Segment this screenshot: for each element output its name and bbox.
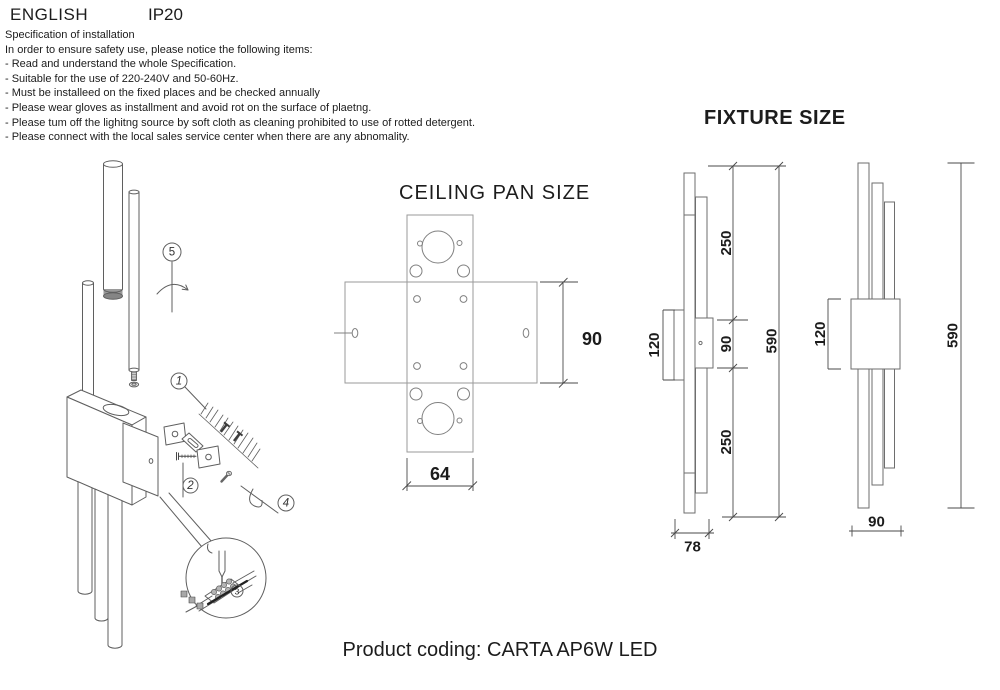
spec-intro: In order to ensure safety use, please no… bbox=[5, 43, 475, 58]
specification-text: Specification of installation In order t… bbox=[5, 28, 475, 145]
step-4-number: 4 bbox=[283, 498, 289, 510]
spec-item: - Must be installeed on the fixed places… bbox=[5, 86, 475, 101]
fixture-front-view bbox=[851, 163, 900, 508]
step-3-number: 3 bbox=[235, 587, 240, 597]
step-1-number: 1 bbox=[176, 376, 182, 388]
small-screw-icon bbox=[222, 471, 232, 481]
dim-side-body: 90 bbox=[718, 336, 735, 353]
spec-item: - Please wear gloves as installment and … bbox=[5, 101, 475, 116]
spec-item: - Please connect with the local sales se… bbox=[5, 130, 475, 145]
lamp-tube-left bbox=[83, 281, 94, 400]
dim-side-depth: 78 bbox=[684, 539, 701, 556]
pan-vertical-plate bbox=[407, 215, 473, 452]
fixture-size-title: FIXTURE SIZE bbox=[704, 107, 846, 130]
dim-front-body-height: 120 bbox=[812, 321, 829, 346]
pan-dimension-lines bbox=[403, 278, 579, 491]
pan-holes bbox=[334, 231, 529, 435]
step-2-number: 2 bbox=[186, 480, 194, 492]
spec-item: - Please tum off the lighitng source by … bbox=[5, 116, 475, 131]
lamp-tubes-bottom bbox=[78, 482, 122, 649]
spec-item: - Suitable for the use of 220-240V and 5… bbox=[5, 72, 475, 87]
dim-side-lower-tube: 250 bbox=[718, 429, 735, 454]
lamp-tube-large bbox=[104, 161, 123, 300]
wall-bracket bbox=[164, 423, 220, 468]
fixture-size-diagram: 120 250 90 250 590 78 120 590 90 bbox=[640, 135, 1000, 570]
dim-pan-height: 90 bbox=[582, 329, 602, 349]
fixture-side-view bbox=[674, 173, 713, 513]
wiring-detail-circle bbox=[160, 493, 266, 618]
language-label: ENGLISH bbox=[10, 5, 88, 25]
dim-side-upper-tube: 250 bbox=[718, 230, 735, 255]
dim-front-overall: 590 bbox=[945, 323, 962, 348]
dim-front-width: 90 bbox=[868, 514, 885, 531]
screw-icon bbox=[177, 453, 197, 461]
dim-side-body-height: 120 bbox=[646, 332, 663, 357]
dim-pan-width: 64 bbox=[430, 464, 450, 484]
pan-horizontal-plate bbox=[345, 282, 537, 383]
product-coding: Product coding: CARTA AP6W LED bbox=[0, 639, 1000, 662]
lamp-tube-thin bbox=[129, 190, 139, 387]
ceiling-pan-diagram: 90 64 bbox=[330, 206, 622, 498]
step-5-number: 5 bbox=[169, 247, 175, 259]
spec-item: - Read and understand the whole Specific… bbox=[5, 57, 475, 72]
spec-title: Specification of installation bbox=[5, 28, 475, 43]
installation-diagram: 5 1 2 4 3 bbox=[55, 148, 320, 660]
ip-rating-label: IP20 bbox=[148, 5, 183, 25]
dim-side-overall: 590 bbox=[764, 328, 781, 353]
ceiling-pan-title: CEILING PAN SIZE bbox=[399, 182, 590, 205]
